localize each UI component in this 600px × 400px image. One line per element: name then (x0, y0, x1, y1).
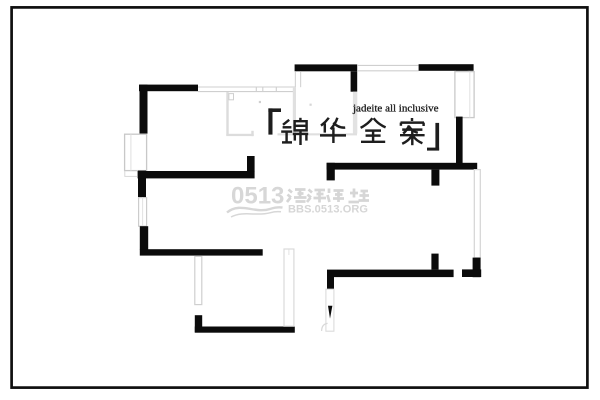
svg-text:BBS.0513.ORG: BBS.0513.ORG (288, 204, 368, 216)
svg-text:0513: 0513 (231, 183, 284, 210)
svg-text:jadeite all inclusive: jadeite all inclusive (352, 102, 439, 114)
